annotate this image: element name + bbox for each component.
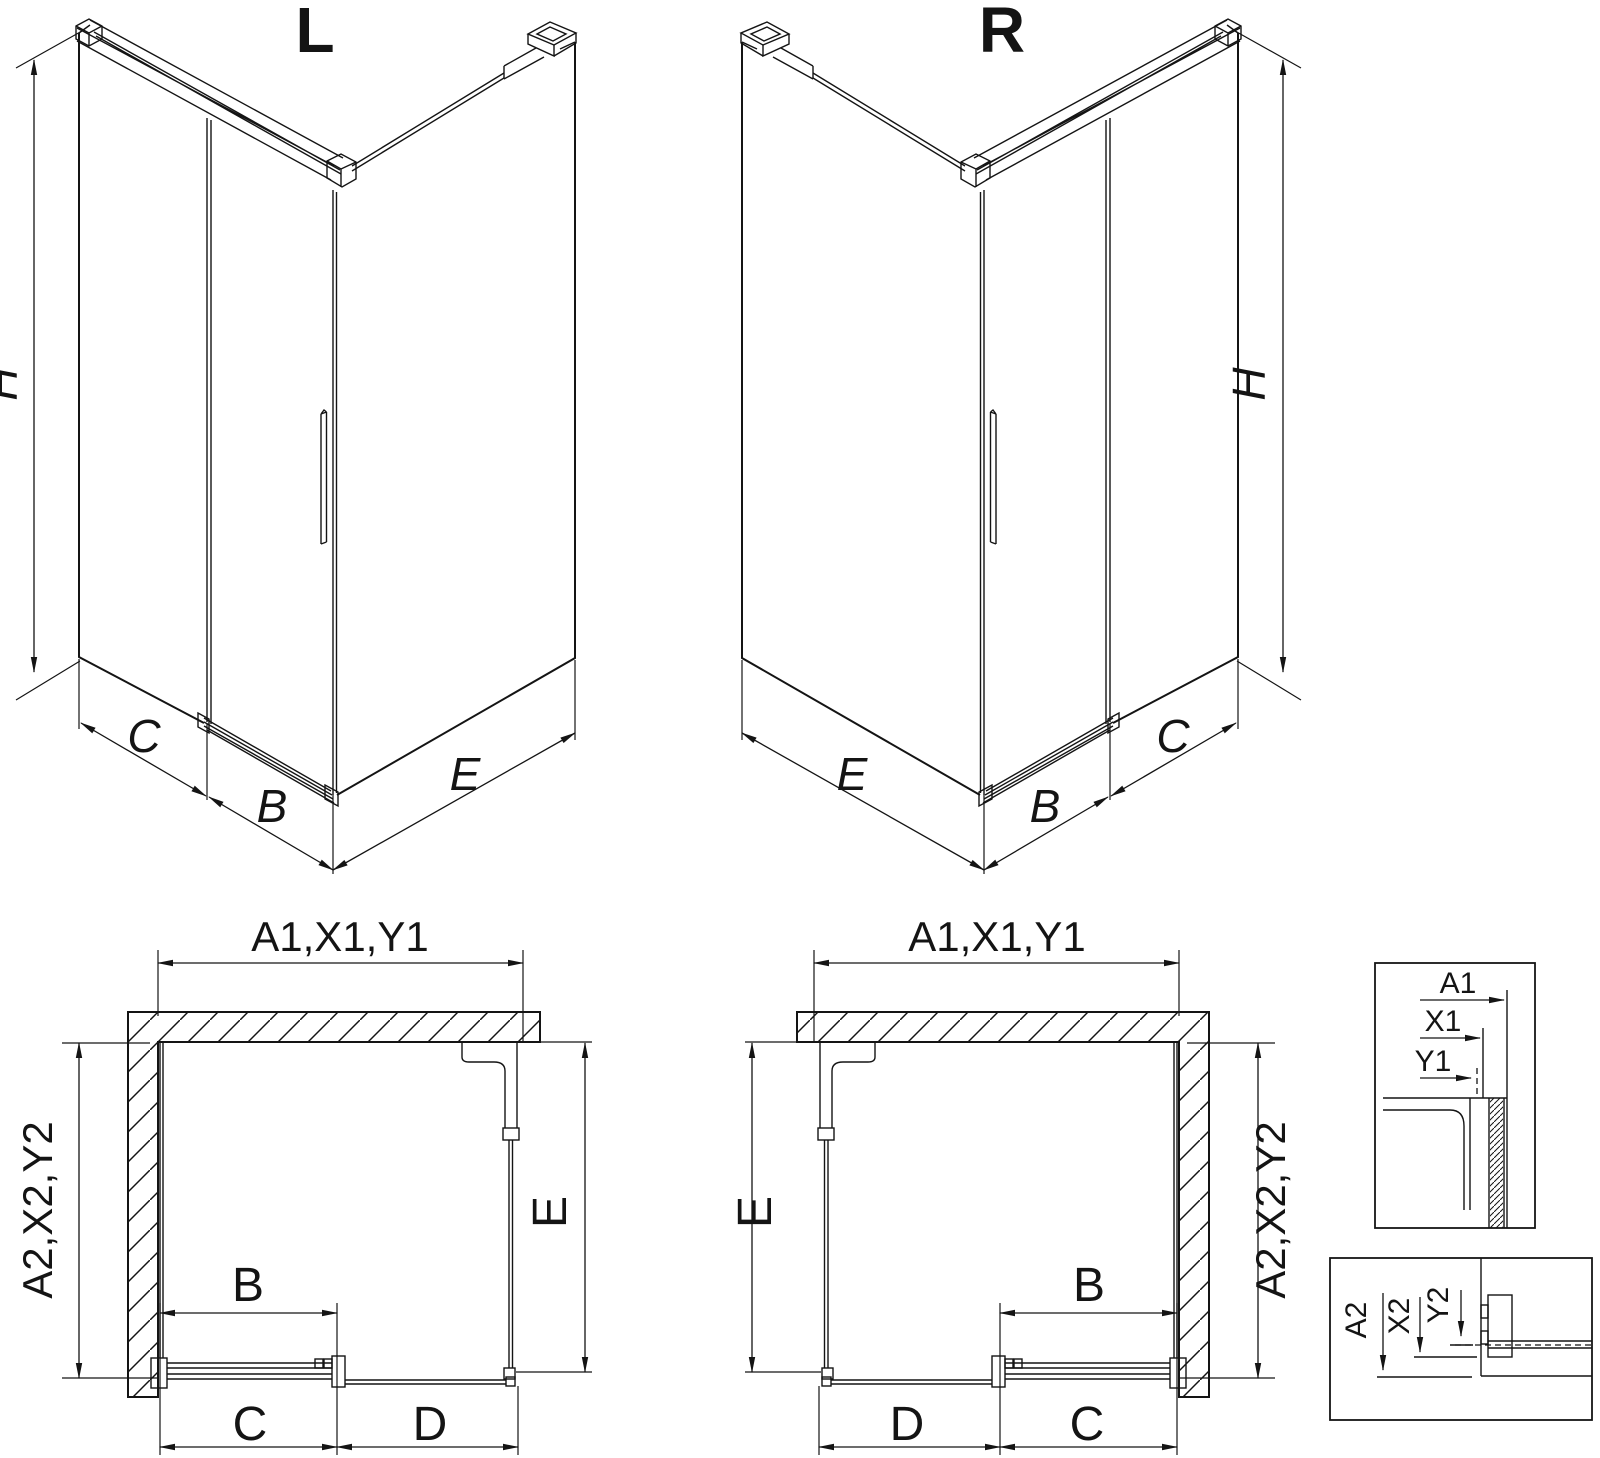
plan-left-dim-left: A2,X2,Y2: [14, 1121, 61, 1298]
plan-left-dim-b: B: [232, 1259, 264, 1312]
detail-bottom-figure: A2 X2 Y2: [1330, 1258, 1592, 1420]
iso-left-dim-b: B: [257, 780, 288, 832]
plan-right-dim-c: C: [1070, 1398, 1105, 1451]
detail-bottom-label-x2: X2: [1383, 1298, 1416, 1335]
iso-left-title: L: [295, 0, 334, 66]
iso-right-figure: R H C B E: [741, 0, 1301, 874]
iso-right-dim-b: B: [1030, 780, 1061, 832]
plan-left-dim-top: A1,X1,Y1: [251, 913, 428, 960]
detail-top-label-a1: A1: [1440, 967, 1477, 1000]
iso-right-geometry: [741, 19, 1301, 874]
detail-top-label-x1: X1: [1425, 1005, 1462, 1038]
plan-left-dim-c: C: [233, 1398, 268, 1451]
detail-bottom-label-y2: Y2: [1422, 1287, 1455, 1324]
plan-right-dim-b: B: [1073, 1259, 1105, 1312]
plan-right-dim-d: D: [890, 1398, 925, 1451]
detail-top-glass-hatch: [1490, 1098, 1503, 1228]
iso-right-dim-c: C: [1156, 710, 1190, 762]
iso-left-figure: L H C B E: [0, 0, 576, 874]
iso-right-dim-e: E: [837, 748, 869, 800]
detail-top-label-y1: Y1: [1415, 1045, 1452, 1078]
detail-bottom-label-a2: A2: [1340, 1302, 1373, 1339]
plan-right-dim-top: A1,X1,Y1: [908, 913, 1085, 960]
plan-left-figure: A1,X1,Y1 A2,X2,Y2 E B C D: [14, 913, 592, 1455]
plan-left-wall-hatch: [128, 1012, 540, 1397]
iso-left-geometry: [16, 19, 576, 874]
iso-left-dim-h: H: [0, 367, 27, 401]
detail-top-frame: [1375, 963, 1535, 1228]
drawing-svg: L H C B E R H C B E A1,X1,Y1 A2,X2,Y2 E …: [0, 0, 1600, 1458]
iso-right-dim-h: H: [1223, 367, 1275, 401]
detail-top-figure: A1 X1 Y1: [1375, 963, 1535, 1228]
plan-right-dim-e: E: [729, 1196, 782, 1228]
plan-left-dim-e: E: [524, 1196, 577, 1228]
technical-drawing-sheet: L H C B E R H C B E A1,X1,Y1 A2,X2,Y2 E …: [0, 0, 1600, 1458]
iso-left-dim-c: C: [127, 710, 161, 762]
iso-left-dim-e: E: [450, 748, 482, 800]
iso-right-title: R: [979, 0, 1025, 66]
plan-right-dim-right: A2,X2,Y2: [1247, 1121, 1294, 1298]
plan-left-dim-d: D: [413, 1398, 448, 1451]
plan-right-figure: A1,X1,Y1 E A2,X2,Y2 B D C: [729, 913, 1294, 1455]
plan-right-wall-hatch: [797, 1012, 1209, 1397]
